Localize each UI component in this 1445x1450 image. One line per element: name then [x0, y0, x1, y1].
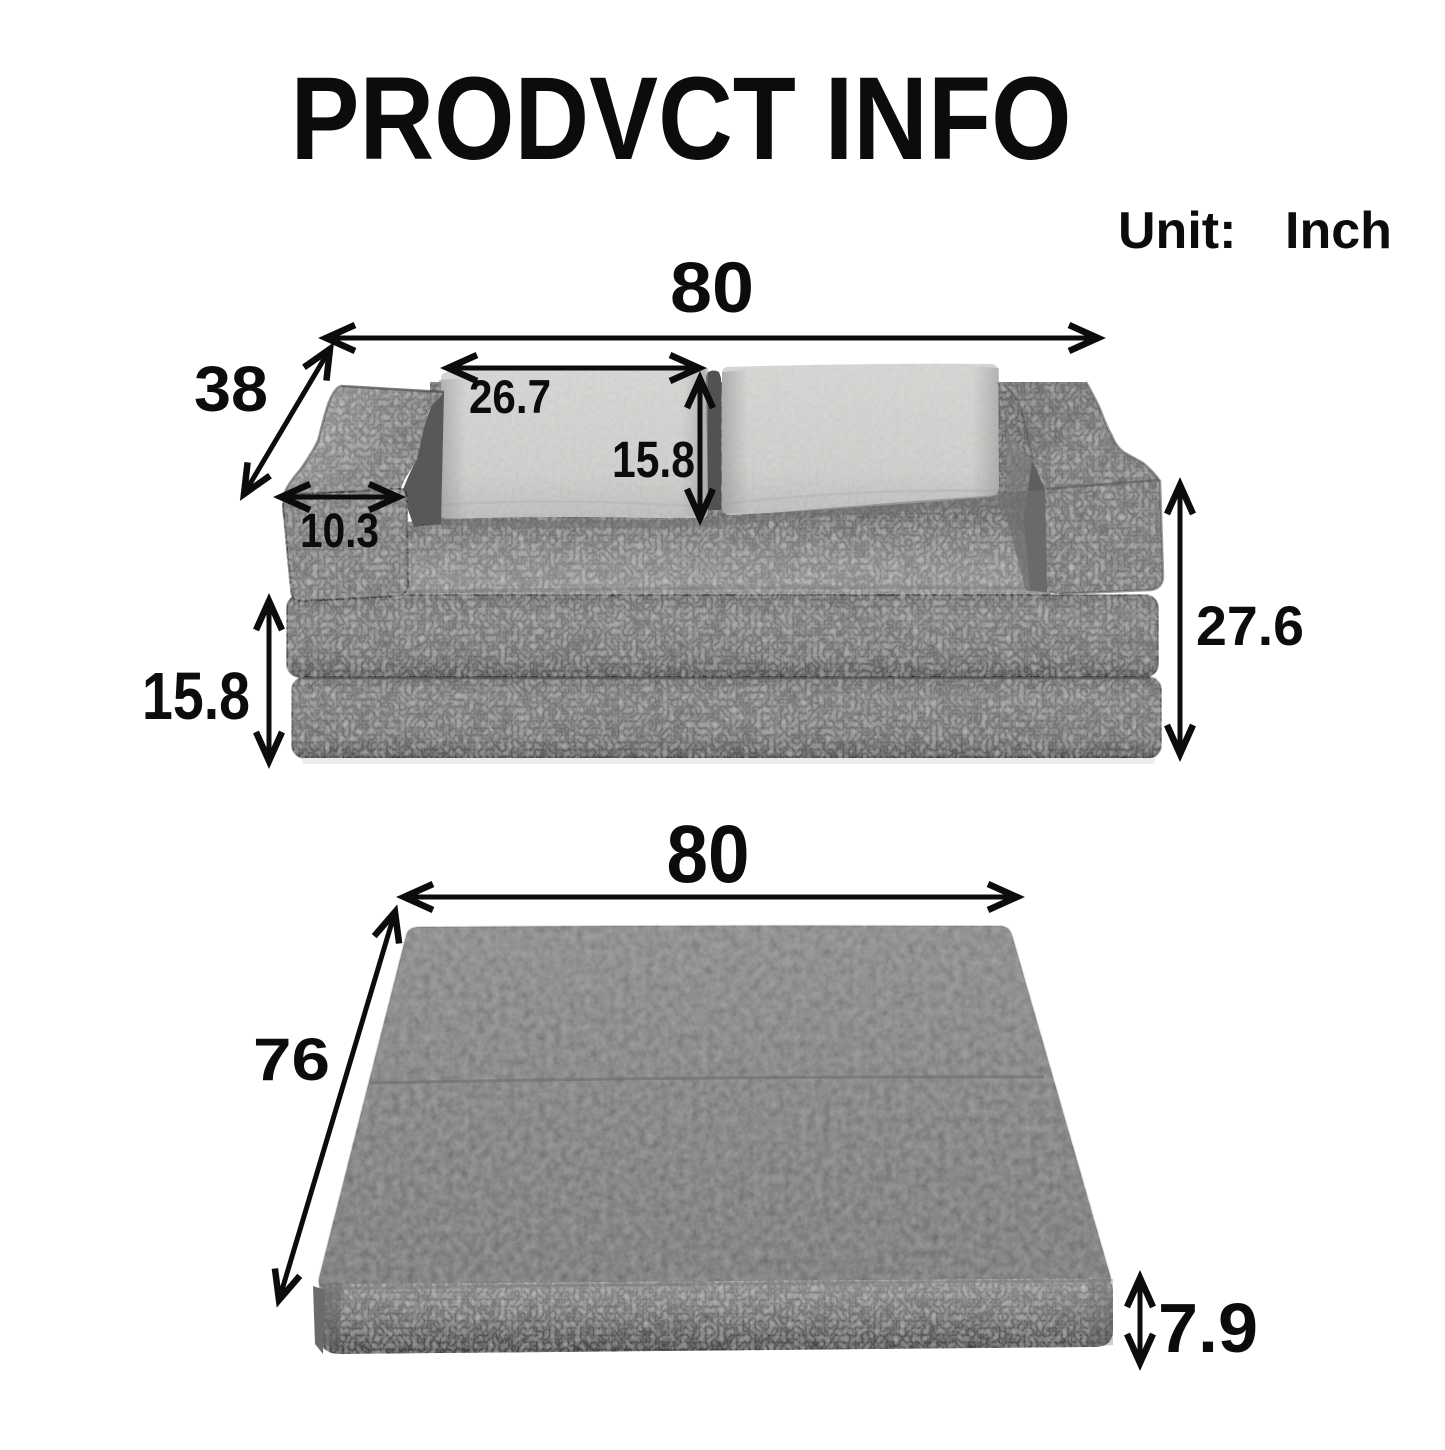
svg-text:80: 80 — [670, 249, 754, 328]
svg-text:27.6: 27.6 — [1196, 594, 1304, 657]
svg-text:15.8: 15.8 — [612, 431, 695, 488]
svg-text:10.3: 10.3 — [300, 505, 379, 558]
svg-text:80: 80 — [667, 809, 750, 900]
svg-text:15.8: 15.8 — [142, 659, 250, 734]
svg-text:26.7: 26.7 — [469, 370, 551, 423]
svg-text:PRODVCT INFO: PRODVCT INFO — [291, 53, 1072, 185]
svg-text:7.9: 7.9 — [1158, 1289, 1258, 1367]
svg-text:38: 38 — [194, 353, 268, 425]
svg-text:76: 76 — [253, 1026, 330, 1093]
